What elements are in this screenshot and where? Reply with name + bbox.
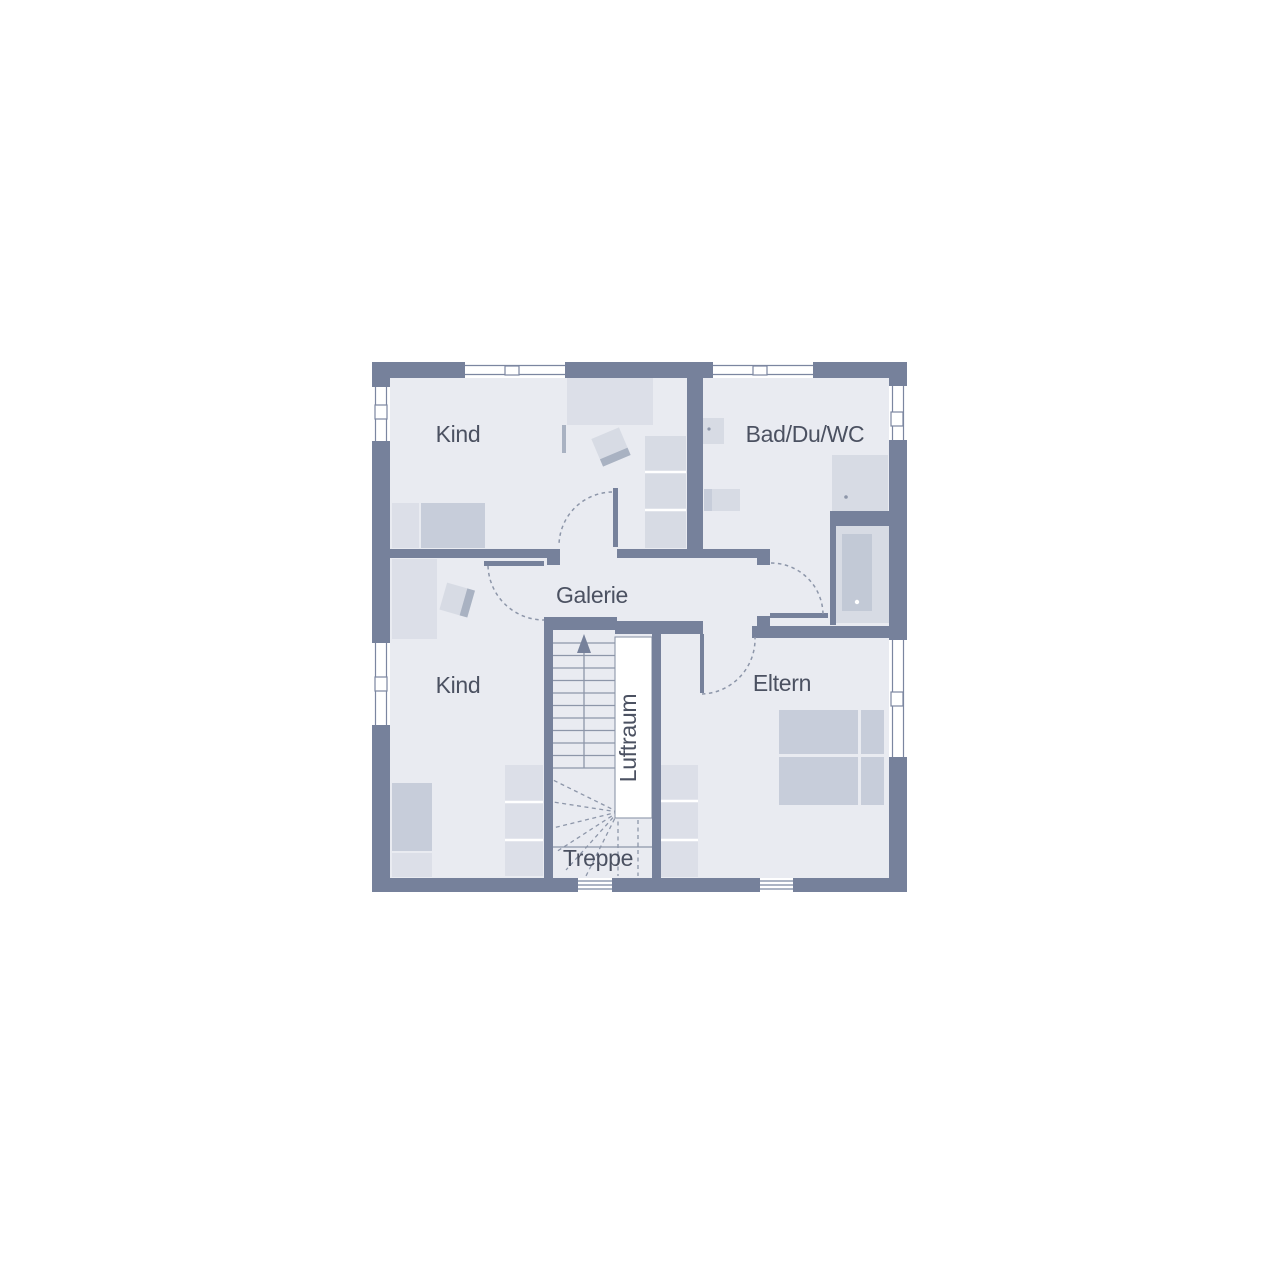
wardrobe-door-detail: [562, 425, 566, 453]
shelf-kind-top: [645, 436, 686, 548]
wall-stair-right: [652, 633, 661, 878]
window-eltern-east: [889, 640, 907, 757]
wardrobe-kind-bottom-right: [505, 765, 543, 876]
bathtub-drain-dot: [855, 600, 859, 604]
exterior-wall-top: [372, 362, 907, 378]
bed-mattress-kind-bottom: [392, 783, 432, 851]
sink-drain-dot: [707, 427, 710, 430]
floor-plan-svg: Kind Bad/Du/WC Galerie Kind Eltern Trepp…: [0, 0, 1280, 1280]
bed-pillow-kind-bottom: [392, 853, 432, 877]
bed-eltern-mattress-2: [779, 757, 858, 805]
window-treppe-south: [578, 878, 612, 892]
window-kind-top-north: [465, 362, 565, 378]
wall-tab-left-doorway: [547, 558, 560, 565]
wall-bath-niche-top: [830, 511, 889, 526]
room-label-galerie: Galerie: [556, 582, 628, 608]
bed-mattress-kind-top: [421, 503, 485, 548]
shower: [832, 455, 888, 511]
door-leaf-eltern: [700, 634, 704, 693]
wall-bathtub-left: [830, 526, 836, 625]
room-label-eltern: Eltern: [753, 670, 811, 696]
window-bad-east: [889, 386, 907, 440]
wall-eltern-north-right: [752, 626, 889, 638]
wall-tab-eltern-doorway: [757, 616, 770, 626]
window-bad-north: [713, 362, 813, 378]
door-leaf-kind-top: [613, 488, 618, 547]
bathtub-inner: [842, 534, 872, 611]
wall-stair-top: [544, 617, 617, 630]
wall-tab-bath-doorway: [757, 558, 770, 565]
wardrobe-kind-bottom-upper: [392, 559, 437, 639]
bed-pillow-kind-top: [392, 503, 419, 548]
room-label-kind-bottom: Kind: [436, 672, 481, 698]
room-label-bad: Bad/Du/WC: [746, 421, 865, 447]
bed-eltern-head-1: [861, 710, 884, 754]
toilet-cistern: [704, 489, 712, 511]
window-eltern-south: [760, 878, 793, 892]
wardrobe-eltern: [660, 765, 698, 877]
wall-kind-bad-divider: [687, 378, 703, 558]
window-kind-top-west: [372, 387, 390, 441]
wall-eltern-north-left: [615, 621, 703, 634]
shower-drain-dot: [844, 495, 848, 499]
wall-kind-top-south-left: [390, 549, 560, 558]
exterior-wall-right: [889, 362, 907, 892]
exterior-wall-bottom: [372, 878, 907, 892]
wall-stair-left: [544, 617, 553, 878]
room-label-kind-top: Kind: [436, 421, 481, 447]
door-leaf-kind-bottom: [484, 561, 544, 566]
bed-eltern-mattress-1: [779, 710, 858, 754]
void-label-luftraum: Luftraum: [615, 694, 641, 782]
bed-eltern-head-2: [861, 757, 884, 805]
exterior-wall-left: [372, 362, 390, 892]
wardrobe-kind-top: [567, 378, 653, 425]
toilet-bowl: [712, 489, 740, 511]
window-kind-bottom-west: [372, 643, 390, 725]
door-leaf-bad: [770, 613, 828, 618]
sink: [703, 418, 724, 444]
stair-label-treppe: Treppe: [563, 845, 633, 871]
